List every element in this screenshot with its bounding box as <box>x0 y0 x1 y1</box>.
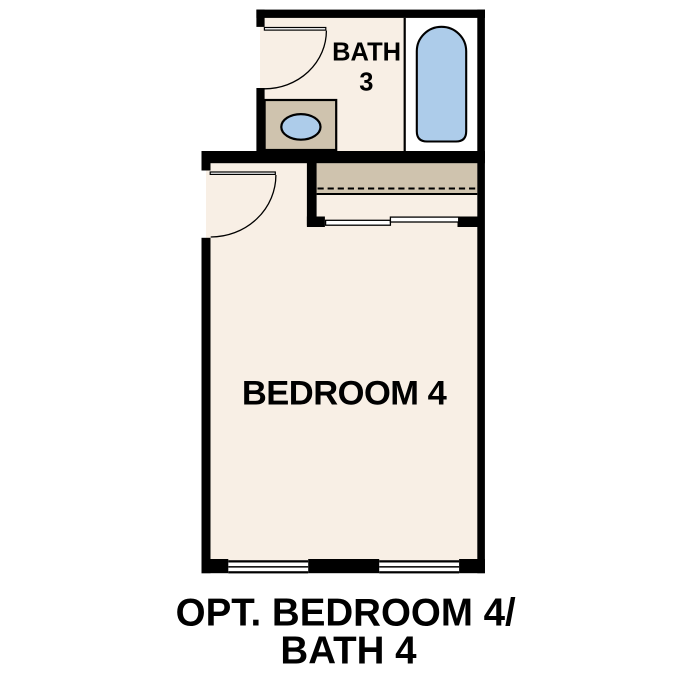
svg-text:OPT. BEDROOM 4/: OPT. BEDROOM 4/ <box>176 592 516 635</box>
svg-text:BEDROOM 4: BEDROOM 4 <box>242 375 447 413</box>
svg-text:BATH: BATH <box>332 38 401 66</box>
svg-text:BATH 4: BATH 4 <box>280 629 417 672</box>
svg-text:3: 3 <box>359 69 373 97</box>
